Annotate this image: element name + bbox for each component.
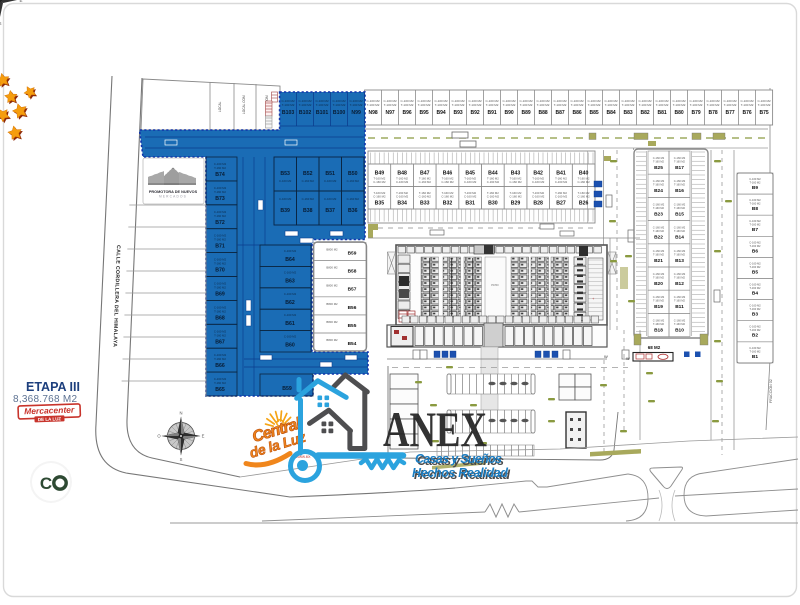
svg-text:B54: B54 [348,341,357,347]
svg-text:T-100 M2: T-100 M2 [571,103,584,107]
svg-text:T-160 M2: T-160 M2 [674,276,686,280]
svg-text:B28: B28 [533,201,543,207]
svg-text:B103: B103 [282,110,295,116]
svg-text:B68: B68 [215,315,225,321]
svg-text:B37: B37 [325,208,335,214]
svg-text:B71: B71 [215,244,225,250]
svg-text:B100: B100 [333,110,346,116]
svg-text:T-100 M2: T-100 M2 [588,103,601,107]
svg-text:B19: B19 [654,304,663,310]
svg-text:DE LA LUZ: DE LA LUZ [38,416,62,422]
svg-text:C-160 M2: C-160 M2 [487,180,500,184]
svg-text:B59: B59 [348,251,357,257]
svg-text:T-160 M2: T-160 M2 [214,309,226,313]
svg-text:T-160 M2: T-160 M2 [674,252,686,256]
svg-text:B96: B96 [403,110,412,116]
svg-text:B17: B17 [675,165,684,171]
svg-text:B93: B93 [454,110,463,116]
svg-text:C-160 M2: C-160 M2 [324,179,337,183]
svg-text:B88: B88 [539,110,548,116]
svg-text:C-160 M2: C-160 M2 [674,295,686,299]
svg-text:T-160 M2: T-160 M2 [214,262,226,266]
svg-text:C-160 M2: C-160 M2 [749,304,761,308]
svg-text:B32: B32 [443,201,453,207]
svg-text:T-160 M2: T-160 M2 [674,183,686,187]
svg-text:B6: B6 [752,248,758,254]
svg-text:B33: B33 [420,201,430,207]
svg-text:T-160 M2: T-160 M2 [214,333,226,337]
svg-text:B27: B27 [556,201,566,207]
svg-text:B24: B24 [654,188,663,194]
svg-text:T-100 M2: T-100 M2 [554,103,567,107]
svg-text:B53: B53 [280,171,290,177]
svg-text:C-160 M2: C-160 M2 [555,195,568,199]
svg-text:E: E [202,434,205,439]
svg-text:B30: B30 [488,201,498,207]
svg-text:B18: B18 [654,327,663,333]
svg-text:C-160 M2: C-160 M2 [279,197,292,201]
svg-text:B83: B83 [624,110,633,116]
svg-text:B58: B58 [348,269,357,275]
svg-text:T-160 M2: T-160 M2 [750,244,762,248]
svg-text:T-160 M2: T-160 M2 [214,166,226,170]
svg-text:T-100 M2: T-100 M2 [367,103,380,107]
svg-text:C-160 M2: C-160 M2 [373,195,386,199]
svg-text:T-160 M2: T-160 M2 [674,160,686,164]
svg-text:W: W [604,354,608,359]
svg-text:T-160 M2: T-160 M2 [214,381,226,385]
svg-text:ANEX: ANEX [383,401,487,457]
svg-text:B79: B79 [692,110,701,116]
svg-text:B8: B8 [752,206,758,212]
svg-text:C-160 M2: C-160 M2 [324,197,337,201]
svg-text:FRACCION 02: FRACCION 02 [769,379,773,403]
svg-text:B82: B82 [641,110,650,116]
svg-text:C-160 M2: C-160 M2 [532,180,545,184]
svg-text:T-100 M2: T-100 M2 [622,103,635,107]
svg-text:C-160 M2: C-160 M2 [674,318,686,322]
svg-text:C-160 M2: C-160 M2 [653,179,665,183]
svg-text:B102: B102 [299,110,312,116]
svg-text:B22: B22 [654,235,663,241]
svg-text:B91: B91 [488,110,497,116]
svg-text:B87: B87 [556,110,565,116]
svg-text:Casas y Sueños: Casas y Sueños [415,452,502,466]
svg-text:B94: B94 [437,110,446,116]
svg-text:B10: B10 [675,327,684,333]
svg-text:C-160 M2: C-160 M2 [674,272,686,276]
svg-text:B75: B75 [760,110,769,116]
svg-text:B73: B73 [215,196,225,202]
svg-text:C-160 M2: C-160 M2 [653,295,665,299]
svg-text:T-100 M2: T-100 M2 [350,103,363,107]
svg-text:C-160 M2: C-160 M2 [653,226,665,230]
svg-text:C-160 M2: C-160 M2 [749,325,761,329]
svg-text:C-160 M2: C-160 M2 [509,195,522,199]
svg-text:B69: B69 [215,292,225,298]
svg-text:B60: B60 [285,343,295,349]
svg-text:T-160 M2: T-160 M2 [750,223,762,227]
svg-text:B76: B76 [743,110,752,116]
svg-text:T-100 M2: T-100 M2 [707,103,720,107]
svg-text:C-160 M2: C-160 M2 [441,180,454,184]
svg-text:B77: B77 [726,110,735,116]
svg-text:N97: N97 [386,110,395,116]
svg-text:B59: B59 [282,386,292,392]
svg-text:C-160 M2: C-160 M2 [653,156,665,160]
svg-text:B85: B85 [590,110,599,116]
svg-text:B7: B7 [752,227,758,233]
svg-text:C-160 M2: C-160 M2 [347,179,360,183]
svg-text:B3: B3 [752,312,758,318]
svg-text:C-160 M2: C-160 M2 [441,195,454,199]
svg-text:B13: B13 [675,258,684,264]
svg-text:B25: B25 [654,165,663,171]
svg-text:T-100 M2: T-100 M2 [690,103,703,107]
svg-text:C-160 M2: C-160 M2 [749,240,761,244]
svg-text:LOCAL COM: LOCAL COM [242,95,246,114]
svg-text:Mercacenter: Mercacenter [24,405,75,417]
svg-text:T-100 M2: T-100 M2 [656,103,669,107]
svg-text:B38: B38 [303,208,313,214]
svg-text:S: S [180,457,183,462]
svg-text:T-160 M2: T-160 M2 [653,299,665,303]
svg-text:C-160 M2: C-160 M2 [749,177,761,181]
svg-text:C-160 M2: C-160 M2 [487,195,500,199]
svg-text:T-100 M2: T-100 M2 [435,103,448,107]
svg-text:B67: B67 [215,339,225,345]
svg-text:C-160 M2: C-160 M2 [653,272,665,276]
svg-text:T-100 M2: T-100 M2 [469,103,482,107]
svg-text:T-160 M2: T-160 M2 [653,276,665,280]
svg-text:B2: B2 [752,333,758,339]
svg-text:C-160 M2: C-160 M2 [464,195,477,199]
svg-text:B36: B36 [348,208,358,214]
svg-text:B61: B61 [285,321,295,327]
svg-text:B800 M2: B800 M2 [326,302,338,306]
svg-text:C-160 M2: C-160 M2 [347,197,360,201]
svg-text:C-160 M2: C-160 M2 [749,346,761,350]
svg-text:B56: B56 [348,305,357,311]
svg-text:T-160 M2: T-160 M2 [750,349,762,353]
svg-text:T-160 M2: T-160 M2 [653,206,665,210]
svg-text:W: W [626,356,630,361]
svg-text:C-160 M2: C-160 M2 [532,195,545,199]
svg-text:B4: B4 [752,291,758,297]
svg-text:T-100 M2: T-100 M2 [401,103,414,107]
svg-text:B90: B90 [505,110,514,116]
svg-text:T-100 M2: T-100 M2 [282,103,295,107]
svg-text:C-160 M2: C-160 M2 [653,318,665,322]
svg-text:B23: B23 [654,211,663,217]
svg-text:B12: B12 [675,281,684,287]
svg-text:T-160 M2: T-160 M2 [750,202,762,206]
svg-text:B63: B63 [285,278,295,284]
svg-text:T-160 M2: T-160 M2 [750,286,762,290]
svg-text:B78: B78 [709,110,718,116]
svg-text:C-160 M2: C-160 M2 [674,179,686,183]
svg-text:T-160 M2: T-160 M2 [653,229,665,233]
svg-text:C-160 M2: C-160 M2 [674,226,686,230]
svg-text:8,368.768 M2: 8,368.768 M2 [13,394,77,405]
svg-text:C-160 M2: C-160 M2 [373,180,386,184]
svg-text:B29: B29 [511,201,521,207]
svg-text:N: N [179,411,182,416]
svg-text:B70: B70 [215,268,225,274]
svg-text:B84: B84 [607,110,616,116]
svg-text:T-160 M2: T-160 M2 [750,265,762,269]
svg-text:C-160 M2: C-160 M2 [284,292,297,296]
svg-text:C-160 M2: C-160 M2 [284,313,297,317]
svg-text:T-160 M2: T-160 M2 [653,252,665,256]
svg-text:C-160 M2: C-160 M2 [279,179,292,183]
svg-text:B80: B80 [675,110,684,116]
svg-text:T-160 M2: T-160 M2 [674,299,686,303]
svg-text:B89: B89 [522,110,531,116]
svg-text:B52: B52 [303,171,313,177]
svg-text:PROMOTORA DE NUEVOS: PROMOTORA DE NUEVOS [149,190,198,194]
svg-text:T-160 M2: T-160 M2 [750,328,762,332]
svg-text:B5: B5 [752,269,758,275]
svg-text:C-160 M2: C-160 M2 [419,180,432,184]
svg-text:T-160 M2: T-160 M2 [214,190,226,194]
svg-text:C-160 M2: C-160 M2 [674,249,686,253]
svg-text:T-160 M2: T-160 M2 [214,238,226,242]
svg-text:T-160 M2: T-160 M2 [674,206,686,210]
svg-text:C-160 M2: C-160 M2 [674,202,686,206]
svg-text:C-160 M2: C-160 M2 [749,219,761,223]
svg-text:C-160 M2: C-160 M2 [653,249,665,253]
svg-text:B62: B62 [285,300,295,306]
svg-text:B9: B9 [752,185,758,191]
svg-text:B800 M2: B800 M2 [326,266,338,270]
svg-text:B1: B1 [752,354,758,360]
svg-text:68 M2: 68 M2 [648,345,661,350]
svg-text:B26: B26 [579,201,589,207]
svg-text:T-100 M2: T-100 M2 [724,103,737,107]
svg-text:C-160 M2: C-160 M2 [284,335,297,339]
svg-text:T-100 M2: T-100 M2 [758,103,771,107]
svg-text:B35: B35 [375,201,385,207]
svg-text:C-160 M2: C-160 M2 [749,198,761,202]
svg-text:B39: B39 [280,208,290,214]
svg-text:C-160 M2: C-160 M2 [653,202,665,206]
svg-text:N99: N99 [351,110,361,116]
svg-text:E: E [19,0,22,3]
svg-text:C-160 M2: C-160 M2 [302,179,315,183]
svg-text:B65: B65 [215,387,225,393]
svg-text:C-160 M2: C-160 M2 [396,180,409,184]
svg-text:T-100 M2: T-100 M2 [673,103,686,107]
svg-text:B92: B92 [471,110,480,116]
svg-text:T-160 M2: T-160 M2 [750,307,762,311]
svg-text:T-100 M2: T-100 M2 [452,103,465,107]
svg-text:B31: B31 [465,201,475,207]
svg-text:B16: B16 [675,188,684,194]
svg-text:B800 M2: B800 M2 [326,320,338,324]
svg-text:B81: B81 [658,110,667,116]
svg-text:T-160 M2: T-160 M2 [674,229,686,233]
svg-text:T-100 M2: T-100 M2 [299,103,312,107]
svg-text:T-100 M2: T-100 M2 [486,103,499,107]
svg-text:B800 M2: B800 M2 [326,284,338,288]
svg-text:T-160 M2: T-160 M2 [214,214,226,218]
svg-text:C-160 M2: C-160 M2 [464,180,477,184]
svg-text:T-160 M2: T-160 M2 [674,322,686,326]
svg-text:C-160 M2: C-160 M2 [749,261,761,265]
svg-text:B66: B66 [215,363,225,369]
svg-text:C-160 M2: C-160 M2 [509,180,522,184]
svg-text:B14: B14 [675,235,684,241]
svg-text:C: C [40,474,52,493]
svg-text:T-100 M2: T-100 M2 [741,103,754,107]
svg-text:T-100 M2: T-100 M2 [384,103,397,107]
svg-text:T-100 M2: T-100 M2 [520,103,533,107]
svg-text:N98: N98 [369,110,378,116]
svg-text:B20: B20 [654,281,663,287]
svg-text:B15: B15 [675,211,684,217]
svg-text:T-100 M2: T-100 M2 [605,103,618,107]
svg-text:B51: B51 [325,171,335,177]
svg-text:C-160 M2: C-160 M2 [555,180,568,184]
svg-text:T-100 M2: T-100 M2 [503,103,516,107]
svg-text:T-160 M2: T-160 M2 [653,322,665,326]
svg-text:T-160 M2: T-160 M2 [214,357,226,361]
svg-text:T-160 M2: T-160 M2 [750,181,762,185]
svg-text:C-160 M2: C-160 M2 [577,195,590,199]
svg-text:T-100 M2: T-100 M2 [333,103,346,107]
svg-text:T-160 M2: T-160 M2 [653,183,665,187]
svg-text:B101: B101 [316,110,329,116]
svg-text:ETAPA III: ETAPA III [26,380,80,394]
svg-text:Hechos Realidad: Hechos Realidad [412,466,508,480]
svg-text:T-100 M2: T-100 M2 [537,103,550,107]
svg-text:B64: B64 [285,257,295,263]
svg-text:T-100 M2: T-100 M2 [316,103,329,107]
svg-text:B800 M2: B800 M2 [326,338,338,342]
svg-text:B72: B72 [215,220,225,226]
svg-text:T-100 M2: T-100 M2 [418,103,431,107]
svg-text:B55: B55 [348,323,357,329]
svg-text:C-160 M2: C-160 M2 [396,195,409,199]
svg-text:B57: B57 [348,287,357,293]
svg-text:B95: B95 [420,110,429,116]
svg-text:B74: B74 [215,172,225,178]
svg-text:MERCADOS: MERCADOS [159,195,187,199]
svg-text:C-160 M2: C-160 M2 [577,180,590,184]
svg-text:C-160 M2: C-160 M2 [674,156,686,160]
svg-text:LOCAL: LOCAL [218,101,222,112]
svg-text:B800 M2: B800 M2 [326,248,338,252]
svg-text:C-160 M2: C-160 M2 [302,197,315,201]
svg-text:B21: B21 [654,258,663,264]
svg-text:B86: B86 [573,110,582,116]
svg-text:C-160 M2: C-160 M2 [284,249,297,253]
svg-text:PATIO: PATIO [491,283,498,287]
svg-text:T-100 M2: T-100 M2 [639,103,652,107]
svg-text:S: S [0,21,2,26]
svg-text:T-160 M2: T-160 M2 [653,160,665,164]
svg-text:B11: B11 [675,304,684,310]
svg-text:C-160 M2: C-160 M2 [749,283,761,287]
svg-text:C-160 M2: C-160 M2 [419,195,432,199]
svg-text:T-160 M2: T-160 M2 [214,286,226,290]
svg-text:B50: B50 [348,171,358,177]
svg-text:C-160 M2: C-160 M2 [284,270,297,274]
svg-text:B34: B34 [397,201,407,207]
